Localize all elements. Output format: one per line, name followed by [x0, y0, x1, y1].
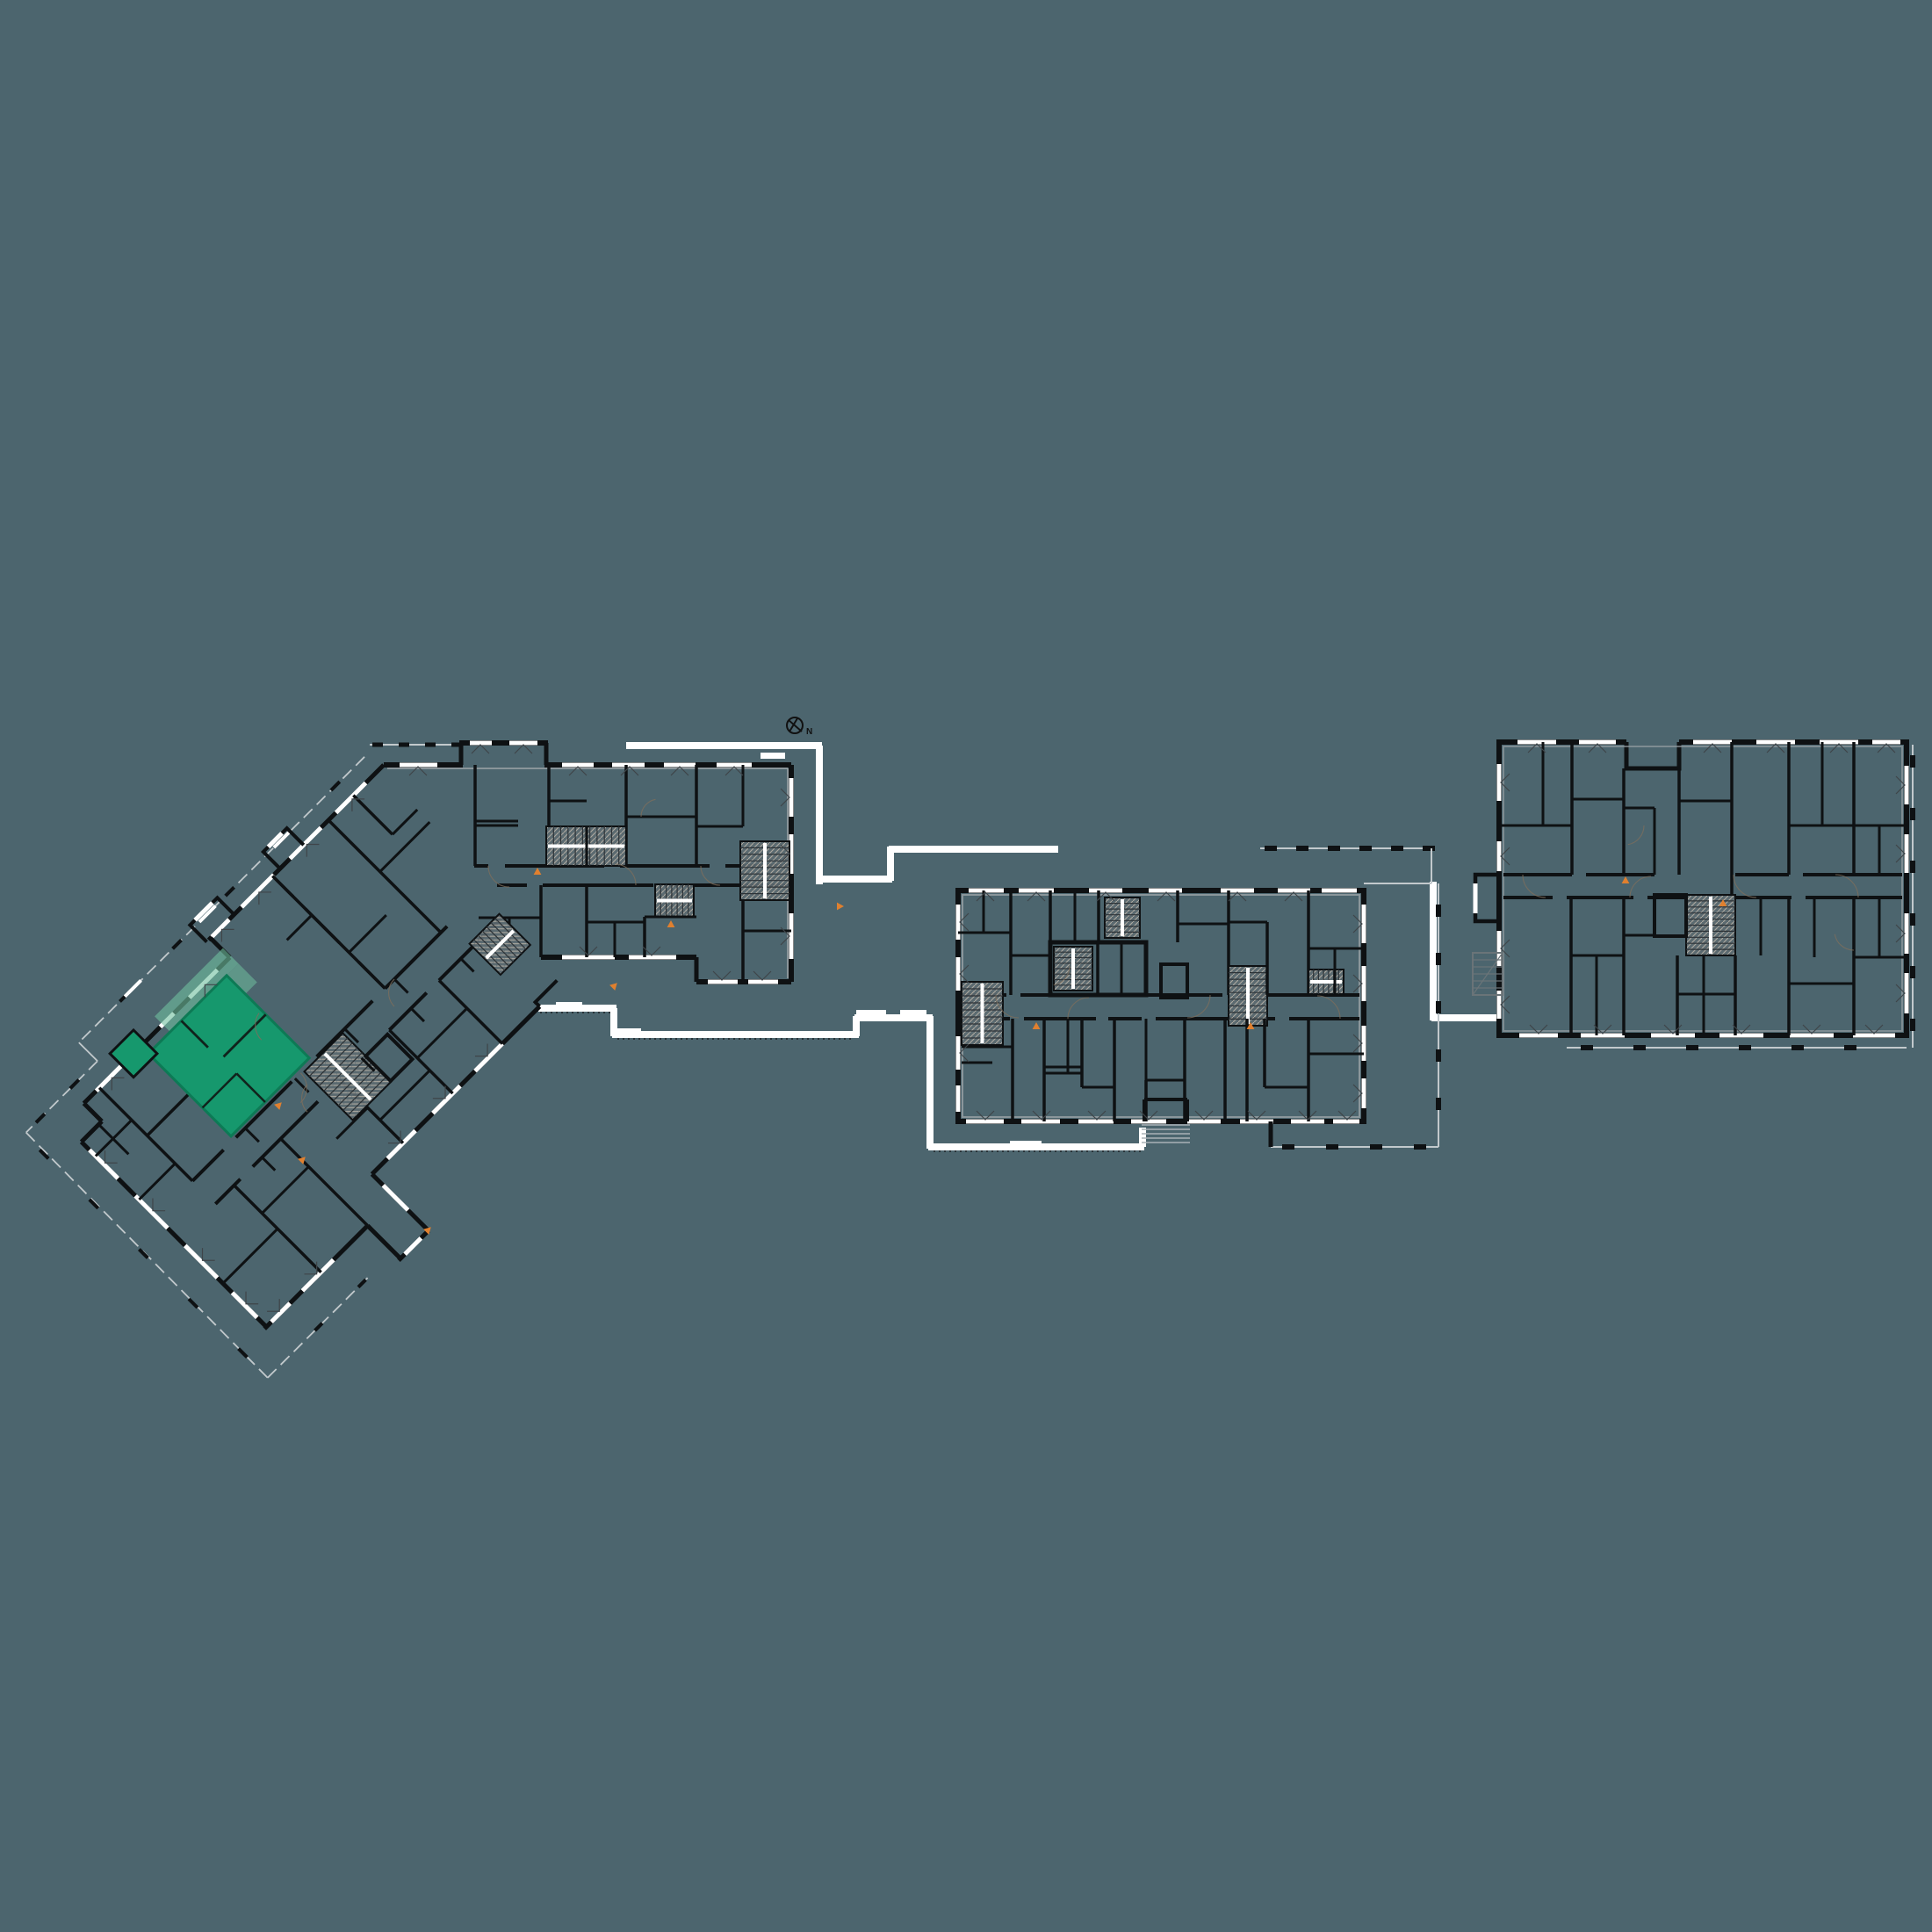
- svg-text:N: N: [806, 727, 812, 737]
